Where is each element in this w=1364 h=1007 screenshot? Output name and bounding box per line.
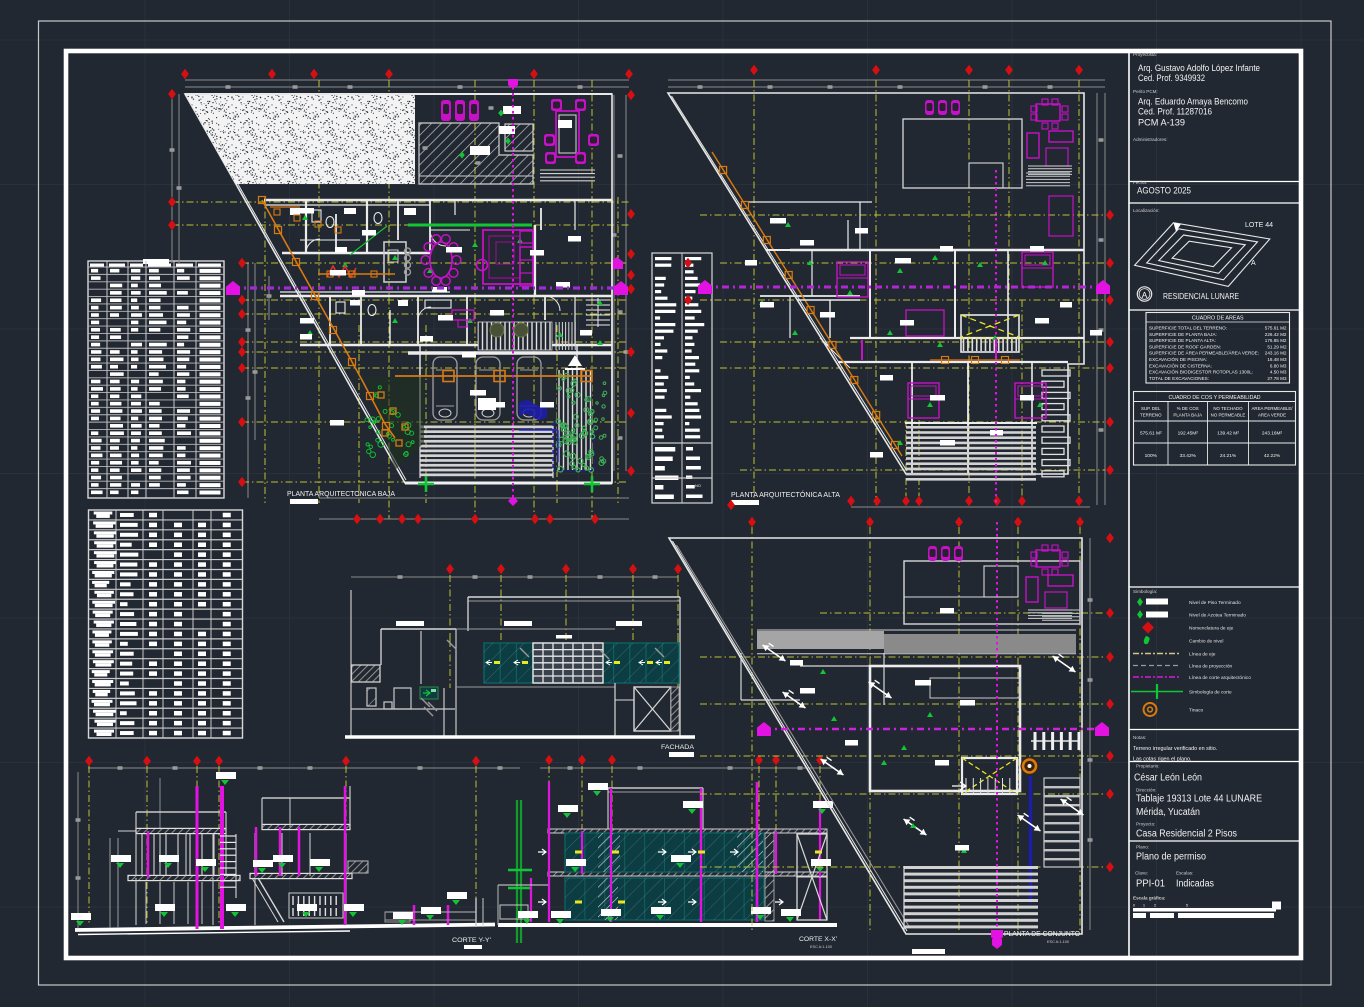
svg-text:192.45M²: 192.45M²	[1178, 431, 1199, 437]
svg-text:Escalas:: Escalas:	[1176, 871, 1193, 876]
svg-text:Notas:: Notas:	[1133, 735, 1146, 740]
svg-text:AGOSTO 2025: AGOSTO 2025	[1137, 185, 1191, 196]
svg-text:Casa Residencial 2 Pisos: Casa Residencial 2 Pisos	[1136, 829, 1237, 840]
svg-text:SUPERFICIE DE PLANTA ALTA:: SUPERFICIE DE PLANTA ALTA:	[1149, 338, 1216, 343]
svg-text:PCM A-139: PCM A-139	[1138, 118, 1185, 128]
svg-text:NO TECHADO: NO TECHADO	[1213, 406, 1243, 411]
svg-text:PPI-01: PPI-01	[1136, 879, 1165, 890]
svg-text:100%: 100%	[1145, 453, 1158, 459]
svg-text:Indicadas: Indicadas	[1176, 879, 1214, 890]
svg-text:% DE COS: % DE COS	[1177, 406, 1199, 411]
svg-text:LOTE 44: LOTE 44	[1245, 220, 1273, 229]
svg-text:Línea de eje: Línea de eje	[1189, 652, 1216, 658]
svg-text:4.50 M3: 4.50 M3	[1270, 370, 1287, 375]
svg-text:Nomenclatura de eje: Nomenclatura de eje	[1189, 626, 1234, 632]
svg-text:0: 0	[1133, 904, 1135, 908]
svg-text:PLANTA ARQUITECTONICA BAJA: PLANTA ARQUITECTONICA BAJA	[287, 489, 395, 498]
svg-text:16.48 M3: 16.48 M3	[1267, 357, 1287, 362]
svg-text:SUPERFICIE DE PLANTA BAJA:: SUPERFICIE DE PLANTA BAJA:	[1149, 332, 1217, 337]
svg-text:PLANTA ARQUITECTÓNICA ALTA: PLANTA ARQUITECTÓNICA ALTA	[731, 490, 840, 499]
svg-text:1: 1	[1143, 904, 1145, 908]
svg-text:CUADRO DE AREAS: CUADRO DE AREAS	[1192, 316, 1244, 322]
svg-text:Línea de corte arquitectónico: Línea de corte arquitectónico	[1189, 675, 1251, 681]
svg-text:226.42 M2: 226.42 M2	[1265, 332, 1287, 337]
svg-text:Tablaje 19313 Lote 44 LUNARE: Tablaje 19313 Lote 44 LUNARE	[1136, 794, 1262, 805]
svg-text:51.29 M2: 51.29 M2	[1267, 344, 1287, 349]
svg-text:Mérida, Yucatán: Mérida, Yucatán	[1136, 807, 1200, 818]
svg-text:Proyecto:: Proyecto:	[1136, 822, 1155, 827]
svg-text:5: 5	[1186, 904, 1188, 908]
svg-text:Arq. Gustavo Adolfo López Infa: Arq. Gustavo Adolfo López Infante	[1138, 63, 1260, 73]
svg-text:AREA VERDE: AREA VERDE	[1258, 413, 1286, 418]
svg-text:Proyectista:: Proyectista:	[1133, 52, 1157, 57]
svg-text:Perito PCM:: Perito PCM:	[1133, 89, 1158, 94]
svg-text:243.16 M2: 243.16 M2	[1265, 351, 1287, 356]
svg-text:24.21%: 24.21%	[1220, 453, 1237, 459]
svg-text:Simbología de corte: Simbología de corte	[1189, 690, 1232, 696]
svg-text:139.42 M²: 139.42 M²	[1217, 431, 1239, 437]
svg-text:SUPERFICIE DE ROOF GARDEN:: SUPERFICIE DE ROOF GARDEN:	[1149, 344, 1221, 349]
svg-text:Ced. Prof. 11287016: Ced. Prof. 11287016	[1138, 107, 1212, 117]
svg-text:Clave:: Clave:	[1135, 871, 1148, 876]
svg-text:NO PERMEABLE: NO PERMEABLE	[1211, 413, 1246, 418]
svg-text:575.61 M2: 575.61 M2	[1265, 326, 1287, 331]
svg-text:RESIDENCIAL LUNARE: RESIDENCIAL LUNARE	[1163, 291, 1239, 301]
svg-text:Cambio de nivel: Cambio de nivel	[1189, 639, 1223, 645]
svg-text:César León León: César León León	[1134, 773, 1202, 784]
svg-text:SUP. DEL: SUP. DEL	[1141, 406, 1161, 411]
svg-text:Línea de proyección: Línea de proyección	[1189, 664, 1233, 670]
svg-text:6.80 M3: 6.80 M3	[1270, 363, 1287, 368]
svg-text:Ced. Prof. 9349932: Ced. Prof. 9349932	[1138, 73, 1205, 83]
svg-text:Nivel de Piso Terminado: Nivel de Piso Terminado	[1189, 600, 1241, 606]
svg-text:Propietario:: Propietario:	[1136, 764, 1160, 769]
svg-text:33.42%: 33.42%	[1180, 453, 1197, 459]
svg-text:Plano:: Plano:	[1136, 845, 1149, 850]
svg-text:ESC A:1-100: ESC A:1-100	[810, 945, 832, 949]
svg-text:27.78 M3: 27.78 M3	[1267, 376, 1287, 381]
svg-text:Simbología:: Simbología:	[1133, 589, 1157, 594]
svg-text:EXCAVACIÓN BIODIGESTOR ROTOPLA: EXCAVACIÓN BIODIGESTOR ROTOPLAS 1300L:	[1149, 369, 1253, 375]
svg-text:A: A	[1251, 260, 1256, 267]
svg-text:243.16M²: 243.16M²	[1262, 431, 1283, 437]
svg-text:CORTE X-X': CORTE X-X'	[799, 936, 837, 943]
svg-text:176.85 M2: 176.85 M2	[1265, 338, 1287, 343]
svg-text:Tinaco: Tinaco	[1189, 708, 1204, 714]
svg-text:Administradores:: Administradores:	[1133, 137, 1167, 142]
svg-text:Las cotas rigen el plano.: Las cotas rigen el plano.	[1133, 757, 1191, 763]
svg-text:AREA PERMEABLE/: AREA PERMEABLE/	[1252, 406, 1294, 411]
svg-text:SUPERFICIE DE ÁREA PERMEABLE/Á: SUPERFICIE DE ÁREA PERMEABLE/ÁREA VERDE:	[1149, 350, 1259, 356]
svg-text:EXCAVACIÓN DE CISTERNA:: EXCAVACIÓN DE CISTERNA:	[1149, 362, 1212, 368]
svg-text:Terreno irregular verificado e: Terreno irregular verificado en sitio.	[1133, 746, 1217, 752]
svg-text:Localización:: Localización:	[1133, 208, 1160, 213]
svg-text:TERRENO: TERRENO	[1140, 413, 1162, 418]
svg-text:2: 2	[1154, 904, 1156, 908]
svg-text:NO: NO	[695, 483, 701, 488]
svg-text:Escala gráfica:: Escala gráfica:	[1133, 896, 1166, 901]
svg-text:575.61 M²: 575.61 M²	[1140, 431, 1162, 437]
svg-text:TOTAL DE EXCAVACIONES:: TOTAL DE EXCAVACIONES:	[1149, 376, 1209, 381]
svg-text:PLANTA DE CONJUNTO: PLANTA DE CONJUNTO	[1004, 931, 1081, 938]
svg-text:A: A	[1142, 290, 1148, 300]
svg-text:CORTE Y-Y': CORTE Y-Y'	[452, 937, 491, 944]
svg-text:Nivel de Azotea Terminado: Nivel de Azotea Terminado	[1189, 613, 1246, 619]
svg-text:42.22%: 42.22%	[1264, 453, 1281, 459]
svg-text:SUPERFICIE TOTAL DEL TERRENO:: SUPERFICIE TOTAL DEL TERRENO:	[1149, 326, 1227, 331]
svg-text:Plano de permiso: Plano de permiso	[1136, 852, 1206, 863]
svg-text:PLANTA BAJA: PLANTA BAJA	[1173, 413, 1202, 418]
svg-text:EXCAVACIÓN DE PISCINA:: EXCAVACIÓN DE PISCINA:	[1149, 356, 1207, 362]
svg-text:CUADRO DE COS Y PERMEABILIDAD: CUADRO DE COS Y PERMEABILIDAD	[1168, 395, 1260, 401]
svg-text:FACHADA: FACHADA	[661, 744, 695, 751]
svg-text:Arq. Eduardo Amaya Bencomo: Arq. Eduardo Amaya Bencomo	[1138, 97, 1248, 107]
svg-text:Dirección:: Dirección:	[1136, 788, 1156, 793]
svg-text:ESC A:1-100: ESC A:1-100	[1047, 940, 1069, 944]
